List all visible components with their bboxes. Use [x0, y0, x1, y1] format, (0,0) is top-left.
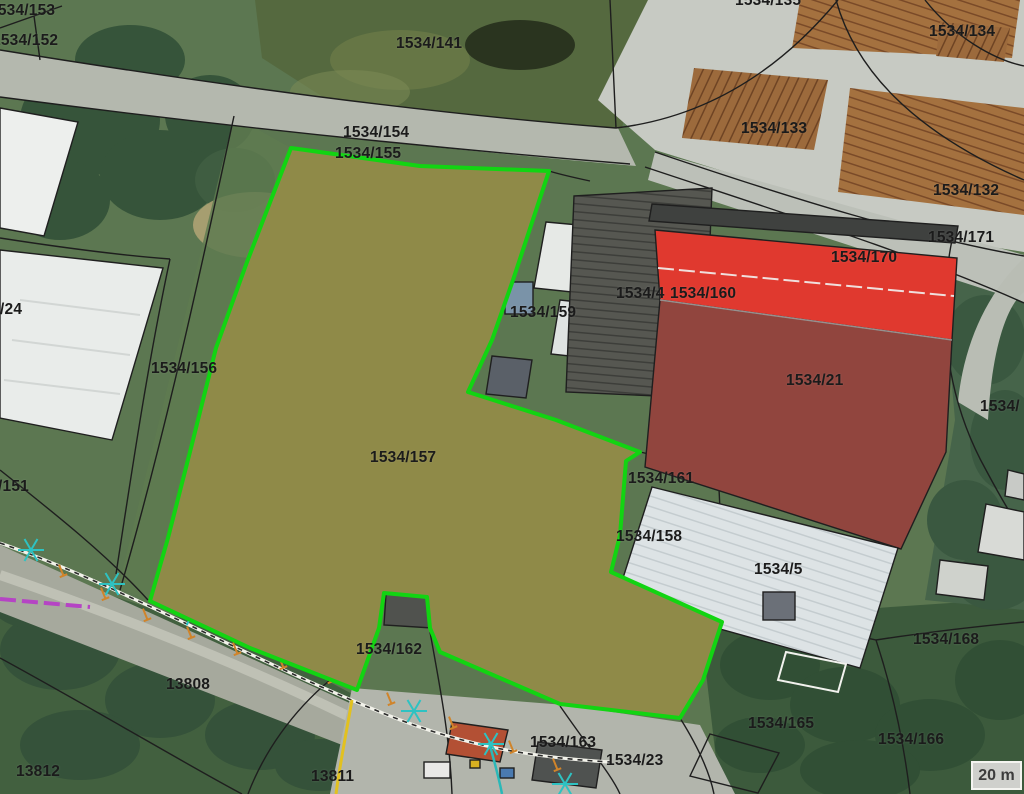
scale-label: 20 m	[978, 767, 1014, 785]
aerial-basemap	[0, 0, 1024, 794]
cadastral-map[interactable]: 1534/1531534/1521534/1411534/1541534/155…	[0, 0, 1024, 794]
scale-indicator: 20 m	[971, 761, 1022, 790]
